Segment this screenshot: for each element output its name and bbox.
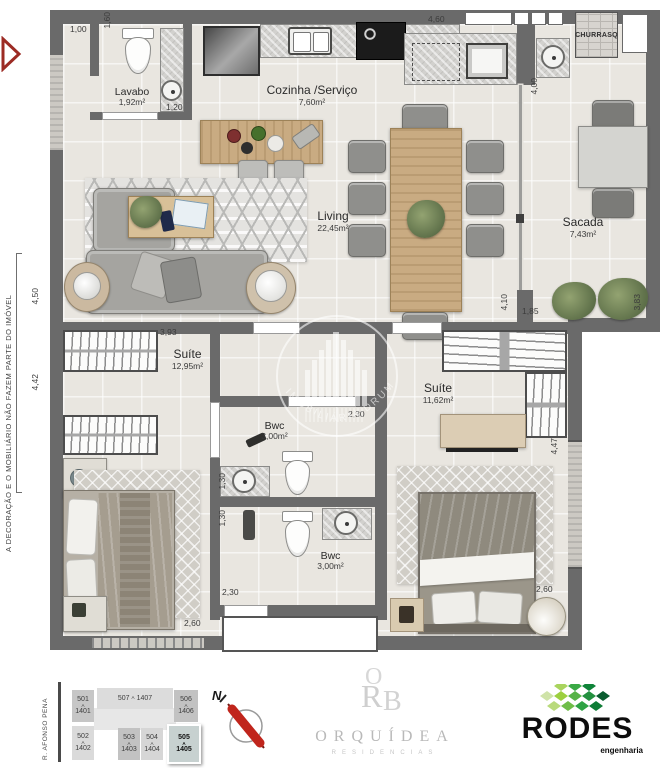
headboard xyxy=(420,624,534,632)
suite1-label: Suíte 12,95m² xyxy=(150,348,225,372)
bwc2-label: Bwc 3,00m² xyxy=(303,550,358,572)
unit-number-upper: 1401 xyxy=(75,708,91,715)
room-area: 3,00m² xyxy=(303,562,358,572)
unit-tile-506[interactable]: 506 A 1406 xyxy=(174,690,198,722)
room-area: 12,95m² xyxy=(150,362,225,372)
kitchen-window xyxy=(465,12,512,25)
unit-number-upper: 1405 xyxy=(176,746,192,753)
lavabo-label: Lavabo 1,92m² xyxy=(96,86,168,108)
plate xyxy=(267,135,284,152)
churrasqueira-sink xyxy=(541,45,565,69)
sacada-table xyxy=(578,126,648,188)
suite2-round-table xyxy=(527,597,566,636)
dim-suite1-bottom: 2,60 xyxy=(184,618,201,628)
pillow-1 xyxy=(66,498,99,555)
pillow-2 xyxy=(477,591,523,626)
room-name: Sacada xyxy=(545,216,621,230)
unit-number-upper: 1402 xyxy=(75,745,91,752)
wall-right-upper xyxy=(646,10,660,332)
suite1-nightstand-bottom xyxy=(63,596,107,632)
toilet-bowl xyxy=(125,37,151,74)
churrasqueira-block: CHURRASQ xyxy=(575,12,618,58)
rodes-subtitle: engenharia xyxy=(505,746,643,755)
kitchen-double-sink xyxy=(288,27,332,55)
unit-number-upper: 1406 xyxy=(178,708,194,715)
footer: R. AFONSO PENA 501 A 1401 507 A 1407 506… xyxy=(0,670,661,768)
lavabo-toilet xyxy=(122,28,154,74)
disclaimer-text: A DECORAÇÃO E O MOBILIÁRIO NÃO FAZEM PAR… xyxy=(4,152,13,552)
magazine xyxy=(171,199,208,229)
unit-tile-504[interactable]: 504 A 1404 xyxy=(141,728,163,760)
keyplan-core xyxy=(94,708,176,730)
suite2-wardrobe-right xyxy=(525,372,567,438)
suite1-wardrobe-1 xyxy=(63,330,158,372)
watermark-building-icon xyxy=(305,332,367,406)
unit-tile-503[interactable]: 503 A 1403 xyxy=(118,728,140,760)
orquidea-subtitle: RESIDENCIAS xyxy=(295,750,475,756)
cozinha-label: Cozinha /Serviço 7,60m² xyxy=(258,84,366,108)
unit-number-upper: 1407 xyxy=(137,695,153,702)
room-name: Suíte xyxy=(150,348,225,362)
churrasqueira-counter xyxy=(622,14,648,53)
compass: N xyxy=(210,682,276,756)
dim-sacada-inner: 4,10 xyxy=(499,294,509,311)
decor-item xyxy=(399,606,414,623)
dim-living-left: 4,50 xyxy=(30,288,40,305)
sacada-chair-south xyxy=(592,188,634,218)
lavabo-wall-right xyxy=(183,24,192,120)
rodes-name: RODES xyxy=(505,712,650,746)
suite2-side-table xyxy=(390,598,424,632)
dim-suite2-right: 4,47 xyxy=(549,438,559,455)
lavabo-wall-left xyxy=(90,24,99,76)
bwc1-sink xyxy=(232,469,256,493)
glass-door-handle xyxy=(516,214,524,223)
kitchen-island xyxy=(200,120,323,164)
dim-kitchen-right: 4,00 xyxy=(529,78,539,95)
bwc2-shower-column xyxy=(243,510,255,540)
dining-chair-r3 xyxy=(466,224,504,257)
bottle-green xyxy=(251,126,266,141)
watermark: IMOBILIÁRIA DRUMOND xyxy=(262,308,412,458)
dim-lavabo-bottom: 1,20 xyxy=(166,102,183,112)
room-name: Cozinha /Serviço xyxy=(258,84,366,98)
suite1-door xyxy=(210,402,220,458)
dim-sacada-right: 3,83 xyxy=(632,294,642,311)
lavabo-door xyxy=(102,112,158,120)
wall-sacada-bottom xyxy=(582,318,660,332)
compass-n-label: N xyxy=(212,688,222,703)
sink-basin-right xyxy=(313,32,329,52)
sink-basin-left xyxy=(293,32,311,52)
kitchen-window-sq3 xyxy=(548,12,563,25)
room-area: 1,92m² xyxy=(96,98,168,108)
suite2-tv-cabinet xyxy=(440,414,526,448)
utility-box xyxy=(222,616,378,652)
unit-number-upper: 1404 xyxy=(144,746,160,753)
entry-door-zone xyxy=(50,55,63,150)
suite2-window xyxy=(568,440,582,569)
kitchen-sacada-wall xyxy=(517,24,535,85)
dim-sacada-bottom: 1,85 xyxy=(522,306,539,316)
sacada-glass-partition xyxy=(519,85,522,290)
kitchen-sink-2 xyxy=(466,43,508,79)
bowl-dark xyxy=(241,142,253,154)
dim-lavabo-top: 1,00 xyxy=(70,24,87,34)
unit-tile-501[interactable]: 501 A 1401 xyxy=(72,690,94,722)
dim-kitchen-top: 4,60 xyxy=(428,14,445,24)
suite2-wardrobe-top xyxy=(442,330,567,372)
dim-bwc1-left: 1,30 xyxy=(217,473,227,490)
room-name: Living xyxy=(298,210,368,224)
monogram-b: B xyxy=(383,686,402,718)
suite1-wardrobe-2 xyxy=(63,415,158,455)
bwc2-sink xyxy=(334,511,358,535)
sacada-label: Sacada 7,43m² xyxy=(545,216,621,240)
cooktop xyxy=(356,22,406,60)
wall-top xyxy=(50,10,660,24)
sofa-pillow-2 xyxy=(160,256,203,304)
dining-chair-l1 xyxy=(348,140,386,173)
street-name: R. AFONSO PENA xyxy=(42,684,49,760)
living-label: Living 22,45m² xyxy=(298,210,368,234)
dim-bwc2-left: 1,30 xyxy=(217,510,227,527)
churrasqueira-label: CHURRASQ xyxy=(575,32,618,39)
unit-separator: A xyxy=(132,696,135,701)
dim-bwc2-bottom: 2,30 xyxy=(222,587,239,597)
wall-bwc-mid xyxy=(220,497,375,507)
dim-suite1-left: 4,42 xyxy=(30,374,40,391)
dining-chair-r2 xyxy=(466,182,504,215)
dim-lavabo-left: 1,60 xyxy=(102,12,112,29)
orquidea-logo: O R B ORQUÍDEA RESIDENCIAS xyxy=(295,670,475,766)
sofa xyxy=(86,250,268,314)
disclaimer-bracket xyxy=(16,253,22,493)
unit-tile-507[interactable]: 507 A 1407 xyxy=(97,688,173,709)
dim-suite2-bottom: 2,60 xyxy=(536,584,553,594)
room-area: 22,45m² xyxy=(298,224,368,234)
unit-number: 507 xyxy=(118,695,130,702)
floorplan: CHURRASQ xyxy=(0,0,661,670)
room-area: 7,60m² xyxy=(258,98,366,108)
lamp-right xyxy=(255,270,287,302)
unit-tile-502[interactable]: 502 A 1402 xyxy=(72,726,94,760)
suite1-window xyxy=(92,638,204,648)
suite2-tv xyxy=(446,448,518,452)
future-appliance-dashed xyxy=(412,43,460,81)
orquidea-name: ORQUÍDEA xyxy=(295,728,475,746)
dim-suite1-top: 3,93 xyxy=(160,327,177,337)
floorplan-page: CHURRASQ xyxy=(0,0,661,768)
entry-arrow-icon xyxy=(0,36,22,72)
lamp-left xyxy=(73,272,101,300)
cutting-board xyxy=(291,123,321,150)
unit-number-upper: 1403 xyxy=(121,746,137,753)
rodes-logo: RODES engenharia xyxy=(505,684,650,764)
bottle-red xyxy=(227,129,241,143)
decor-box xyxy=(72,603,86,617)
throw-blanket xyxy=(120,493,150,627)
street-line xyxy=(58,682,61,762)
kitchen-fridge xyxy=(203,26,260,76)
unit-tile-505-selected[interactable]: 505 A 1405 xyxy=(167,724,201,764)
toilet-bowl xyxy=(285,460,310,495)
room-area: 7,43m² xyxy=(545,230,621,240)
dining-chair-r1 xyxy=(466,140,504,173)
suite2-bed xyxy=(418,492,536,634)
monogram-r: R xyxy=(361,678,382,715)
pillow-1 xyxy=(431,591,477,626)
